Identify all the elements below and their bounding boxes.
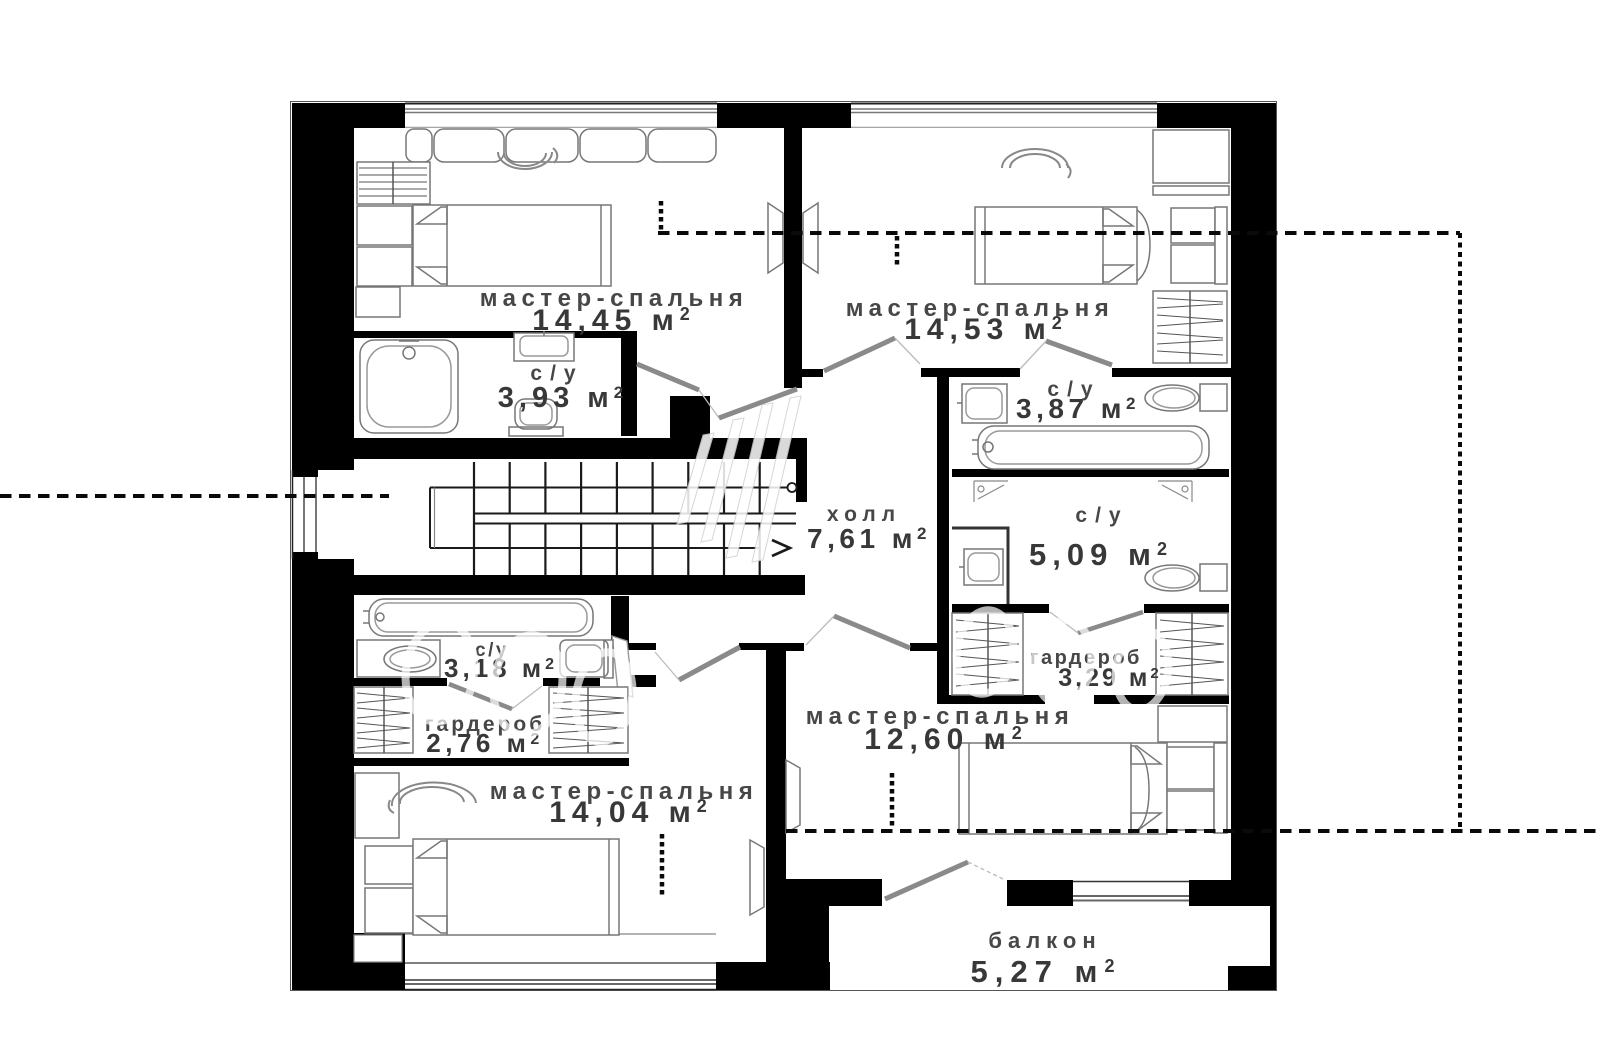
svg-text:с/у: с/у	[1075, 504, 1128, 527]
svg-text:3,87 м2: 3,87 м2	[1016, 393, 1140, 424]
svg-text:14,04 м2: 14,04 м2	[549, 796, 713, 829]
svg-text:12,60 м2: 12,60 м2	[864, 723, 1028, 756]
svg-text:балкон: балкон	[988, 928, 1101, 953]
svg-text:7,61 м2: 7,61 м2	[807, 523, 931, 554]
svg-text:14,45 м2: 14,45 м2	[532, 304, 696, 337]
svg-text:3,93 м2: 3,93 м2	[498, 382, 628, 414]
svg-text:3,29 м2: 3,29 м2	[1058, 664, 1161, 692]
svg-text:5,09 м2: 5,09 м2	[1029, 537, 1173, 572]
svg-text:14,53 м2: 14,53 м2	[904, 313, 1068, 346]
svg-text:5,27 м2: 5,27 м2	[971, 954, 1122, 989]
